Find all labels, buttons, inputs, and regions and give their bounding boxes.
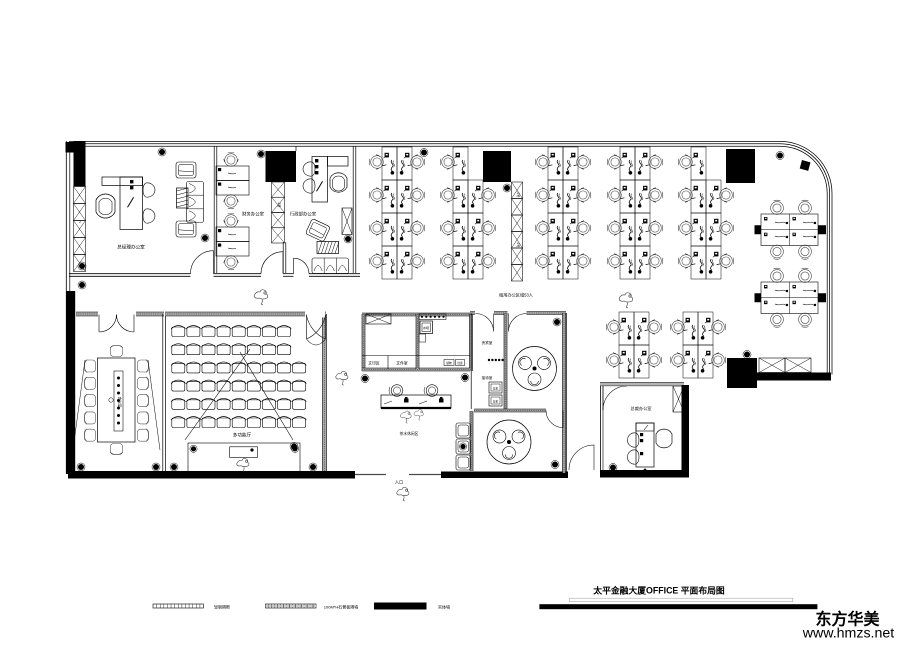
- svg-text:文印区: 文印区: [368, 361, 380, 366]
- svg-text:行政部办公室: 行政部办公室: [290, 211, 317, 218]
- svg-text:租用办公区域53人: 租用办公区域53人: [499, 292, 534, 299]
- svg-text:财务办公室: 财务办公室: [242, 211, 265, 218]
- svg-text:茶水休闲区: 茶水休闲区: [400, 431, 419, 436]
- svg-text:储物: 储物: [446, 361, 452, 365]
- svg-text:总经理办公室: 总经理办公室: [117, 244, 145, 251]
- svg-text:贵宾室: 贵宾室: [482, 340, 493, 345]
- svg-text:入口: 入口: [395, 480, 403, 485]
- svg-text:水吧: 水吧: [423, 325, 429, 330]
- svg-text:饮机: 饮机: [493, 400, 499, 404]
- svg-text:饮机: 饮机: [493, 387, 499, 391]
- svg-text:2: 2: [79, 220, 81, 224]
- svg-text:www.hmzs.net: www.hmzs.net: [802, 626, 895, 642]
- svg-text:2号: 2号: [516, 193, 521, 198]
- svg-text:接待室: 接待室: [482, 375, 493, 380]
- svg-text:100M*H石膏板隔墙: 100M*H石膏板隔墙: [324, 604, 358, 610]
- svg-text:轻钢隔断: 轻钢隔断: [214, 604, 230, 610]
- svg-text:2号: 2号: [277, 203, 282, 208]
- svg-text:总裁办公室: 总裁办公室: [631, 405, 652, 412]
- svg-text:文件室: 文件室: [396, 361, 408, 366]
- svg-text:多功能厅: 多功能厅: [233, 432, 252, 439]
- svg-text:2号: 2号: [516, 243, 521, 248]
- svg-text:会议室: 会议室: [118, 397, 123, 408]
- svg-text:实体墙: 实体墙: [438, 604, 450, 610]
- svg-text:太平金融大厦OFFICE 平面布局图: 太平金融大厦OFFICE 平面布局图: [593, 585, 725, 596]
- svg-text:档案: 档案: [457, 361, 463, 365]
